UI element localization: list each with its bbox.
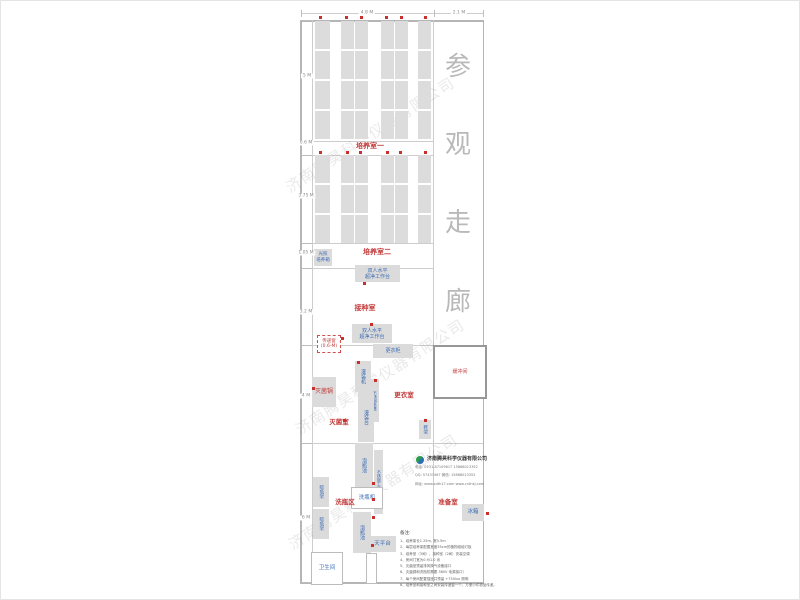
dimension-label: 4 M <box>300 394 312 399</box>
culture-rack <box>381 155 394 243</box>
red-dot <box>359 151 362 154</box>
culture-rack <box>418 155 431 243</box>
pass-through-window: 传递窗(0.6-M) <box>317 335 341 353</box>
company-qq-wechat: QQ: 57437467 微信: 15866013352 <box>415 473 525 478</box>
wall-outer-right <box>483 20 485 583</box>
red-dot <box>341 337 344 340</box>
clean-bench-1: 双人水平超净工作台 <box>355 265 400 282</box>
dimension-tick <box>301 20 312 21</box>
bottle-drying-rack-1-label: 晾瓶架 <box>318 485 323 499</box>
red-dot <box>345 16 348 19</box>
dimension-label: 1.05 M <box>296 251 315 256</box>
culture-rack <box>315 21 330 141</box>
red-dot <box>363 282 366 285</box>
filling-table-label: 灌装台 <box>363 410 369 425</box>
wardrobe: 更衣柜 <box>373 344 413 358</box>
red-dot <box>385 16 388 19</box>
culture-rack <box>381 21 394 141</box>
red-dot <box>424 151 427 154</box>
red-dot <box>357 361 360 364</box>
culture-rack <box>341 155 354 243</box>
culture-rack <box>355 155 368 243</box>
red-dot <box>372 482 375 485</box>
bottle-washer: 洗瓶机 <box>351 487 383 509</box>
red-dot <box>360 16 363 19</box>
red-dot <box>374 379 377 382</box>
notes-block: 备注: 1、培养架长1.25m, 宽0.5m2、每层培养架配置宽度35cm的植物… <box>400 530 528 588</box>
company-website: 网址: www.sdth17.com www.cnthkj.com <box>415 482 525 487</box>
light-incubator: 光照培养箱 <box>314 249 332 266</box>
filling-machine: 灌装机 <box>355 361 371 392</box>
toilet-label: 卫生间 <box>319 565 336 572</box>
dimension-label: 2.1 M <box>451 11 467 16</box>
filling-table: 灌装台 <box>358 392 374 442</box>
corridor-label-char: 走 <box>443 202 473 239</box>
door-leaf <box>366 553 377 584</box>
red-dot <box>424 419 427 422</box>
bottle-drying-rack-2-label: 晾瓶架 <box>318 517 323 531</box>
culture-rack <box>315 155 330 243</box>
company-phone: 电话: 0531-87109617 15866013352 <box>415 465 525 470</box>
soaking-pool-1-label: 泡瓶池 <box>361 458 367 473</box>
filling-machine-label: 灌装机 <box>360 369 366 384</box>
red-dot <box>319 151 322 154</box>
shoe-rack: 鞋架 <box>419 420 431 439</box>
red-dot <box>424 16 427 19</box>
dimension-tick <box>301 345 312 346</box>
dimension-label: 3.75 M <box>296 194 315 199</box>
corridor-label-char: 参 <box>443 46 473 83</box>
shoe-rack-label: 鞋架 <box>422 425 427 434</box>
pass-through-window-label: (0.6-M) <box>321 344 337 349</box>
light-incubator-label: 培养箱 <box>316 258 330 263</box>
red-dot <box>399 151 402 154</box>
fridge: 冰箱 <box>462 504 484 521</box>
corridor-label-char: 观 <box>443 124 473 161</box>
room-label-culture-room-1: 培养室一 <box>356 141 384 151</box>
bottle-drying-rack-1: 晾瓶架 <box>313 477 329 507</box>
red-dot <box>386 151 389 154</box>
red-dot <box>400 16 403 19</box>
red-dot <box>370 323 373 326</box>
dimension-tick <box>301 443 312 444</box>
dimension-label: 0.6 M <box>298 141 314 146</box>
room-label-changing-room: 更衣室 <box>394 389 414 399</box>
room-label-sterilization-room: 灭菌室 <box>329 416 349 426</box>
dimension-tick <box>434 10 435 17</box>
room-label-preparation-room: 准备室 <box>438 496 458 506</box>
notes-title: 备注: <box>400 530 528 536</box>
dimension-tick <box>301 155 312 156</box>
red-dot <box>486 512 489 515</box>
red-dot <box>372 498 375 501</box>
dimension-label: 3.2 M <box>298 310 314 315</box>
soaking-pool-1: 泡瓶池 <box>355 443 373 487</box>
room-label-bottle-washing-area: 洗瓶区 <box>335 496 355 506</box>
company-name: 济南腾昊科学仪器有限公司 <box>427 455 525 462</box>
toilet: 卫生间 <box>311 552 343 585</box>
buffer-room-label: 缓冲间 <box>452 369 467 375</box>
corridor-label-char: 廊 <box>443 281 473 318</box>
red-dot <box>371 544 374 547</box>
buffer-room: 缓冲间 <box>433 345 487 399</box>
culture-rack <box>395 21 408 141</box>
red-dot <box>372 516 375 519</box>
sterilizer-pot: 灭菌锅 <box>312 377 336 407</box>
culture-rack <box>395 155 408 243</box>
company-info: 济南腾昊科学仪器有限公司 电话: 0531-87109617 158660133… <box>415 455 525 487</box>
wardrobe-label: 更衣柜 <box>385 348 400 354</box>
sterilizer-pot-label: 灭菌锅 <box>315 388 333 395</box>
room-label-inoculation-room: 接种室 <box>355 303 376 313</box>
fridge-label: 冰箱 <box>467 509 478 516</box>
bottle-drying-rack-2: 晾瓶架 <box>313 509 329 539</box>
dimension-label: 5 M <box>301 74 313 79</box>
clean-bench-2-label: 超净工作台 <box>359 334 384 340</box>
red-dot <box>343 419 346 422</box>
red-dot <box>312 387 315 390</box>
clean-bench-2: 双人水平超净工作台 <box>352 324 392 343</box>
dimension-tick <box>301 10 302 17</box>
room-label-culture-room-2: 培养室二 <box>363 247 391 257</box>
red-dot <box>319 16 322 19</box>
dimension-label: 4.8 M <box>359 11 375 16</box>
dimension-tick <box>483 10 484 17</box>
notes-list: 1、培养架长1.25m, 宽0.5m2、每层培养架配置宽度35cm的植物组培灯板… <box>400 538 528 588</box>
note-item: 8、培养室和接种室之间安装传递窗一个，方便小件物品传递。 <box>400 582 528 588</box>
soaking-pool-2-label: 泡瓶池 <box>359 525 365 540</box>
clean-bench-1-label: 超净工作台 <box>365 274 390 280</box>
wall-outer-left <box>300 20 302 583</box>
balance-table-label: 天平台 <box>374 541 391 548</box>
red-dot <box>346 151 349 154</box>
floor-plan-canvas: 济南腾昊科学仪器有限公司 济南腾昊科学仪器有限公司 济南腾昊科学仪器有限公司 济… <box>0 0 800 600</box>
dimension-label: 6 M <box>300 516 312 521</box>
wall-aisle2-top <box>301 243 433 244</box>
dimension-tick <box>301 243 312 244</box>
culture-rack <box>341 21 354 141</box>
dimension-tick <box>301 268 312 269</box>
culture-rack <box>418 21 431 141</box>
company-logo-icon <box>416 456 424 464</box>
culture-rack <box>355 21 368 141</box>
